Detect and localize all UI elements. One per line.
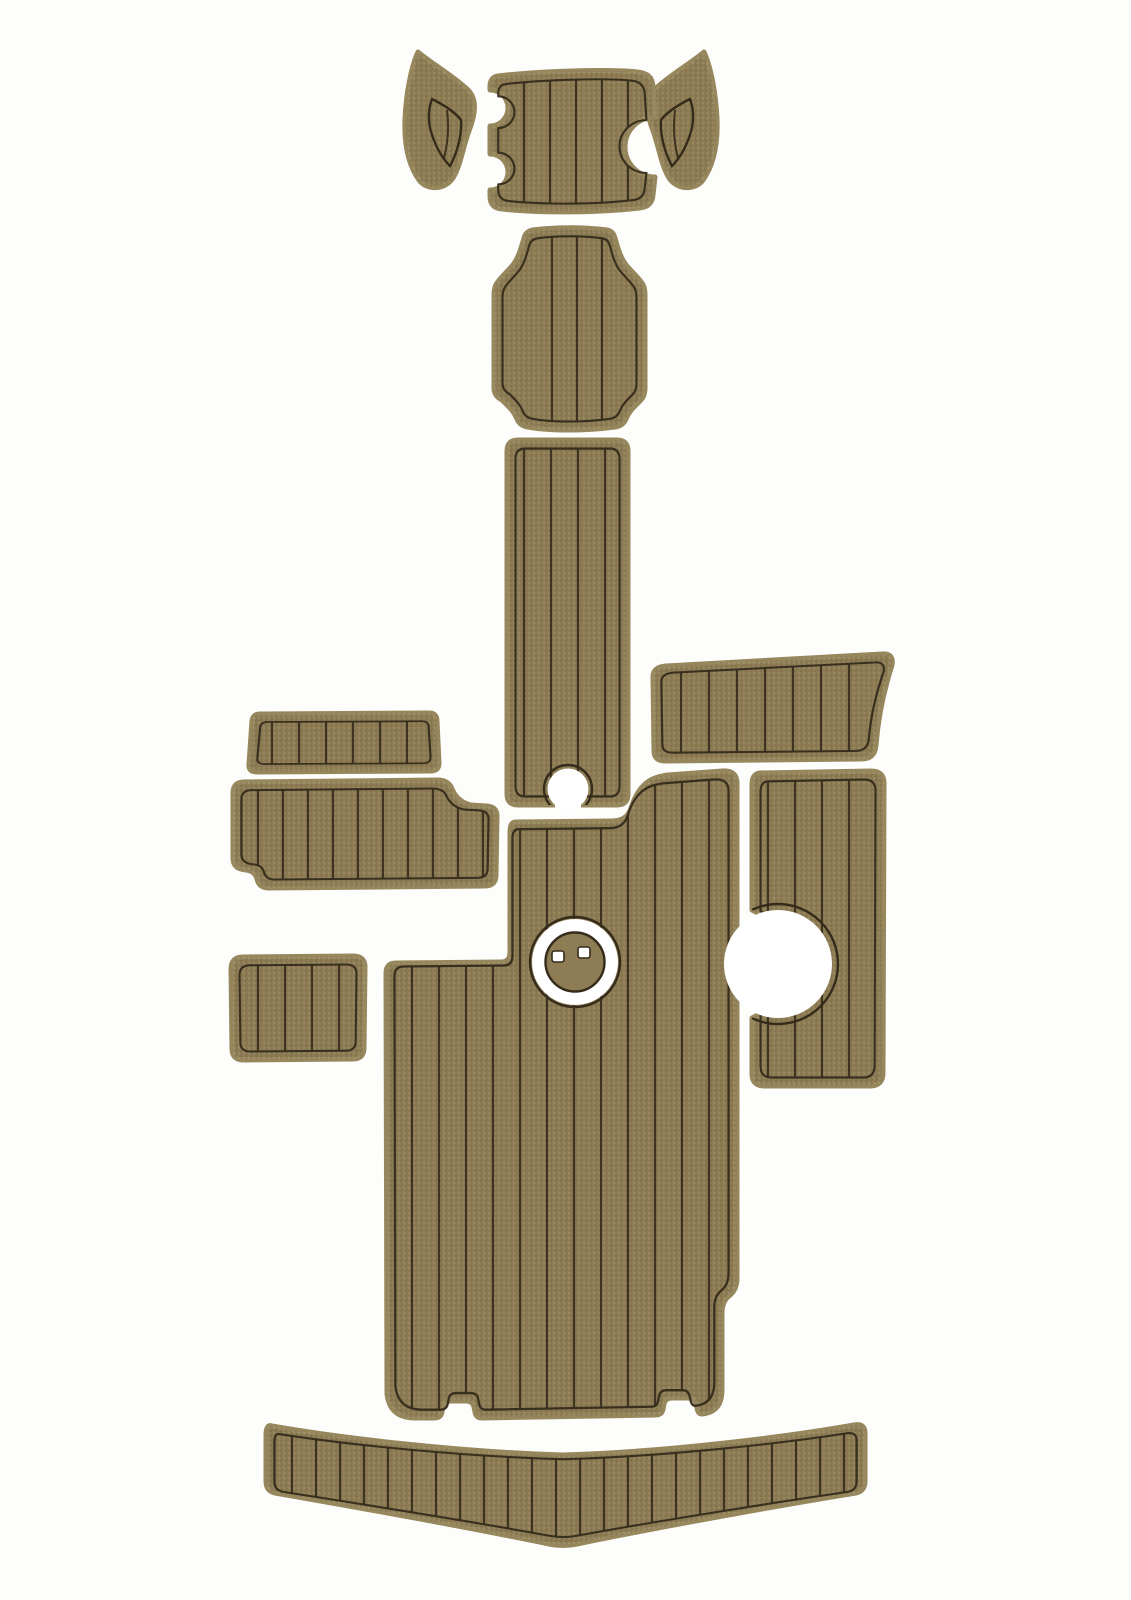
swim-platform-pad: [266, 1420, 865, 1552]
gunwale-pad-right: [653, 650, 892, 765]
foam-texture: [490, 71, 655, 212]
table-base-cutout: [530, 917, 620, 1007]
insert-dot-left: [552, 951, 564, 962]
foam-texture: [507, 440, 628, 805]
helm-step-pad: [494, 226, 645, 432]
foam-texture: [231, 956, 365, 1060]
bow-corner-pad-right: [647, 52, 717, 188]
foam-texture: [405, 52, 475, 188]
side-box-pad-left: [233, 776, 497, 892]
side-box-pad-left-top: [249, 710, 439, 776]
foam-texture: [653, 654, 892, 761]
bow-corner-pad-left: [405, 52, 475, 188]
walkway-pad: [507, 438, 628, 813]
decking-pad-kit-photo: [0, 0, 1131, 1600]
side-deck-pad-right: [718, 768, 884, 1090]
foam-texture: [647, 52, 717, 188]
keyhole-notch-opening: [555, 789, 581, 808]
step-pad-left: [231, 952, 365, 1064]
insert-dot-right: [578, 947, 590, 958]
bow-hatch-pad: [490, 70, 655, 218]
product-photo-canvas: Product photo of a multi-piece EVA foam …: [0, 0, 1131, 1600]
pedestal-cutout: [724, 910, 832, 1018]
